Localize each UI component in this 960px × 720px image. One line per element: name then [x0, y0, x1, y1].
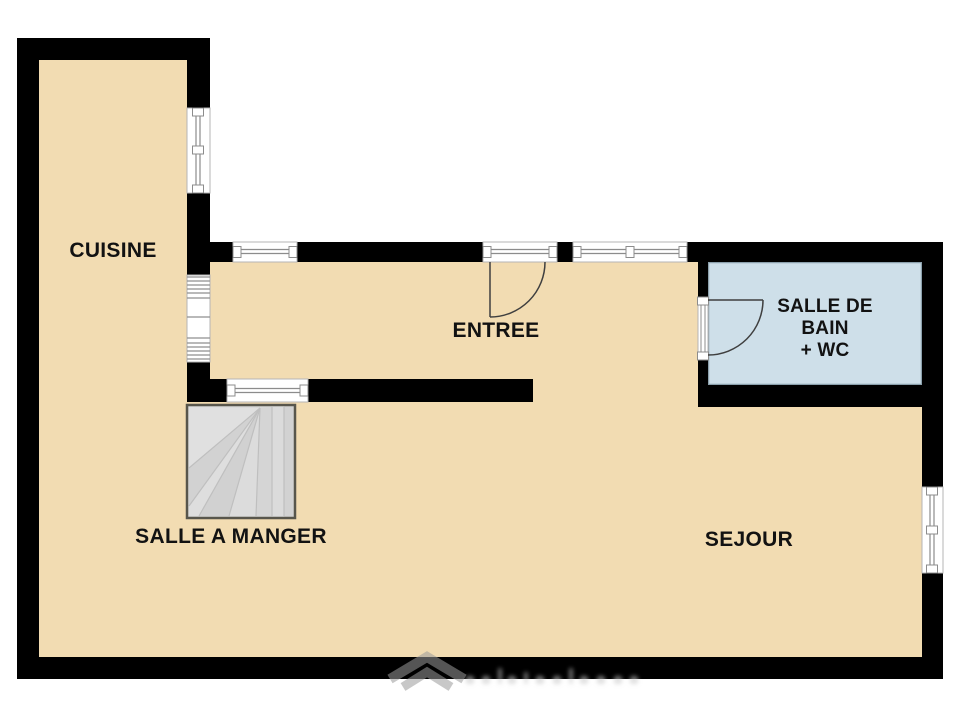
window-kitchen: [187, 108, 210, 193]
wall-entree-top: [210, 242, 922, 262]
room-label-salle-de-bain-line1: SALLE DE: [777, 296, 873, 318]
room-label-salle-a-manger: SALLE A MANGER: [135, 525, 327, 549]
folding-door-kitchen: [187, 275, 210, 362]
wall-bottom: [17, 657, 943, 679]
window-entree-bottom: [227, 379, 308, 402]
wall-top: [17, 38, 210, 60]
wall-right: [922, 242, 943, 679]
stairs: [187, 405, 295, 518]
window-entree-right: [573, 242, 687, 262]
room-label-sejour: SEJOUR: [705, 528, 793, 552]
room-label-salle-de-bain: SALLE DE BAIN + WC: [777, 296, 873, 362]
room-label-cuisine: CUISINE: [69, 239, 156, 263]
window-entree-left: [233, 242, 297, 262]
wall-bathroom-bottom: [698, 385, 943, 407]
wall-left: [17, 38, 39, 679]
room-label-entree: ENTREE: [453, 319, 540, 343]
window-sejour: [922, 487, 943, 573]
room-label-salle-de-bain-line2: BAIN: [777, 318, 873, 340]
room-label-salle-de-bain-line3: + WC: [777, 340, 873, 362]
floor-plan: CUISINE ENTREE SALLE DE BAIN + WC SALLE …: [0, 0, 960, 720]
